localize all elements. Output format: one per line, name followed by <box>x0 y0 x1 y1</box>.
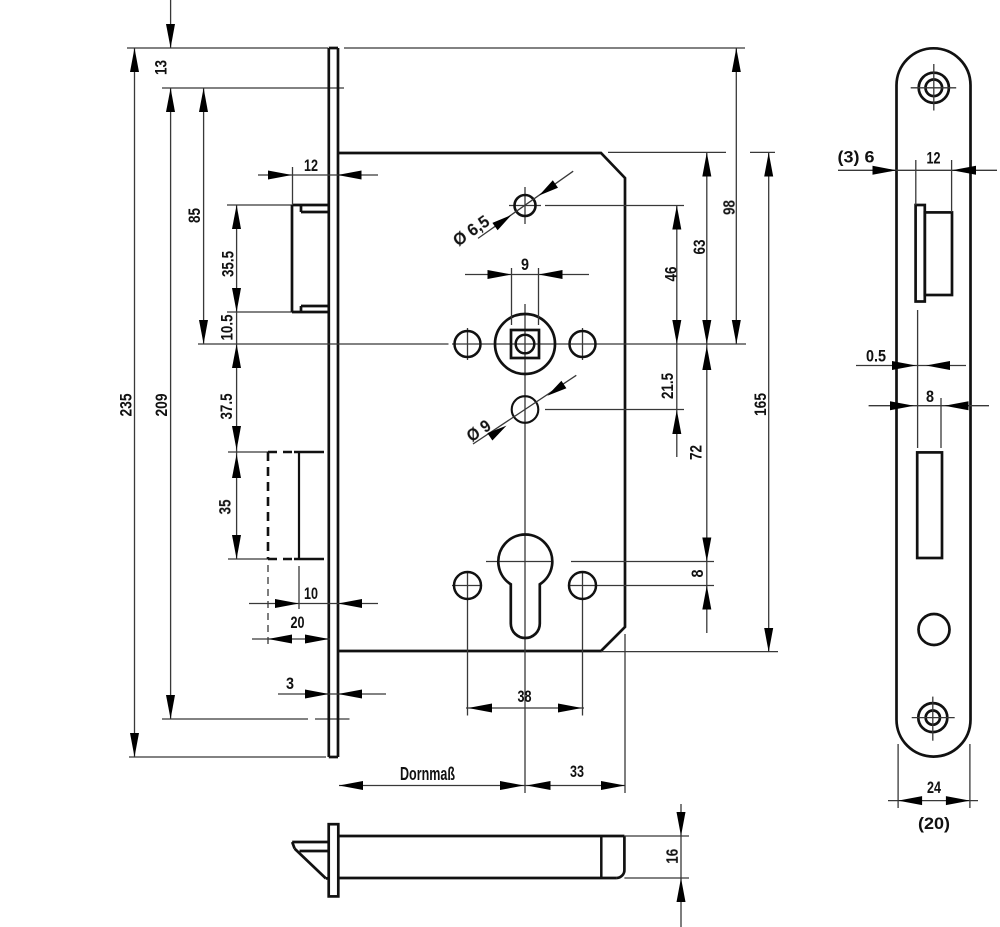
svg-text:10: 10 <box>304 584 318 603</box>
svg-text:12: 12 <box>927 149 941 168</box>
svg-text:63: 63 <box>690 240 709 255</box>
svg-text:(3) 6: (3) 6 <box>838 148 875 167</box>
svg-text:(20): (20) <box>918 814 950 833</box>
svg-text:24: 24 <box>927 778 941 797</box>
svg-text:21.5: 21.5 <box>658 373 677 399</box>
svg-text:85: 85 <box>185 208 204 223</box>
svg-text:8: 8 <box>926 387 934 406</box>
svg-text:165: 165 <box>751 393 770 416</box>
svg-text:46: 46 <box>662 267 681 282</box>
svg-text:209: 209 <box>152 394 171 417</box>
svg-text:235: 235 <box>117 394 136 417</box>
svg-text:Dornmaß: Dornmaß <box>400 764 455 784</box>
svg-text:9: 9 <box>521 255 529 274</box>
svg-text:98: 98 <box>720 200 739 215</box>
svg-text:35.5: 35.5 <box>219 251 238 277</box>
svg-text:33: 33 <box>570 762 584 781</box>
svg-text:20: 20 <box>291 613 305 632</box>
svg-text:12: 12 <box>304 156 318 175</box>
svg-text:72: 72 <box>687 445 706 460</box>
svg-text:3: 3 <box>286 674 294 693</box>
svg-text:0.5: 0.5 <box>866 347 886 366</box>
svg-text:35: 35 <box>216 500 235 515</box>
svg-text:13: 13 <box>152 60 171 75</box>
svg-text:8: 8 <box>688 570 707 578</box>
svg-text:16: 16 <box>663 849 682 864</box>
svg-text:10.5: 10.5 <box>218 315 237 341</box>
svg-text:37.5: 37.5 <box>217 394 236 420</box>
svg-text:38: 38 <box>518 687 532 706</box>
